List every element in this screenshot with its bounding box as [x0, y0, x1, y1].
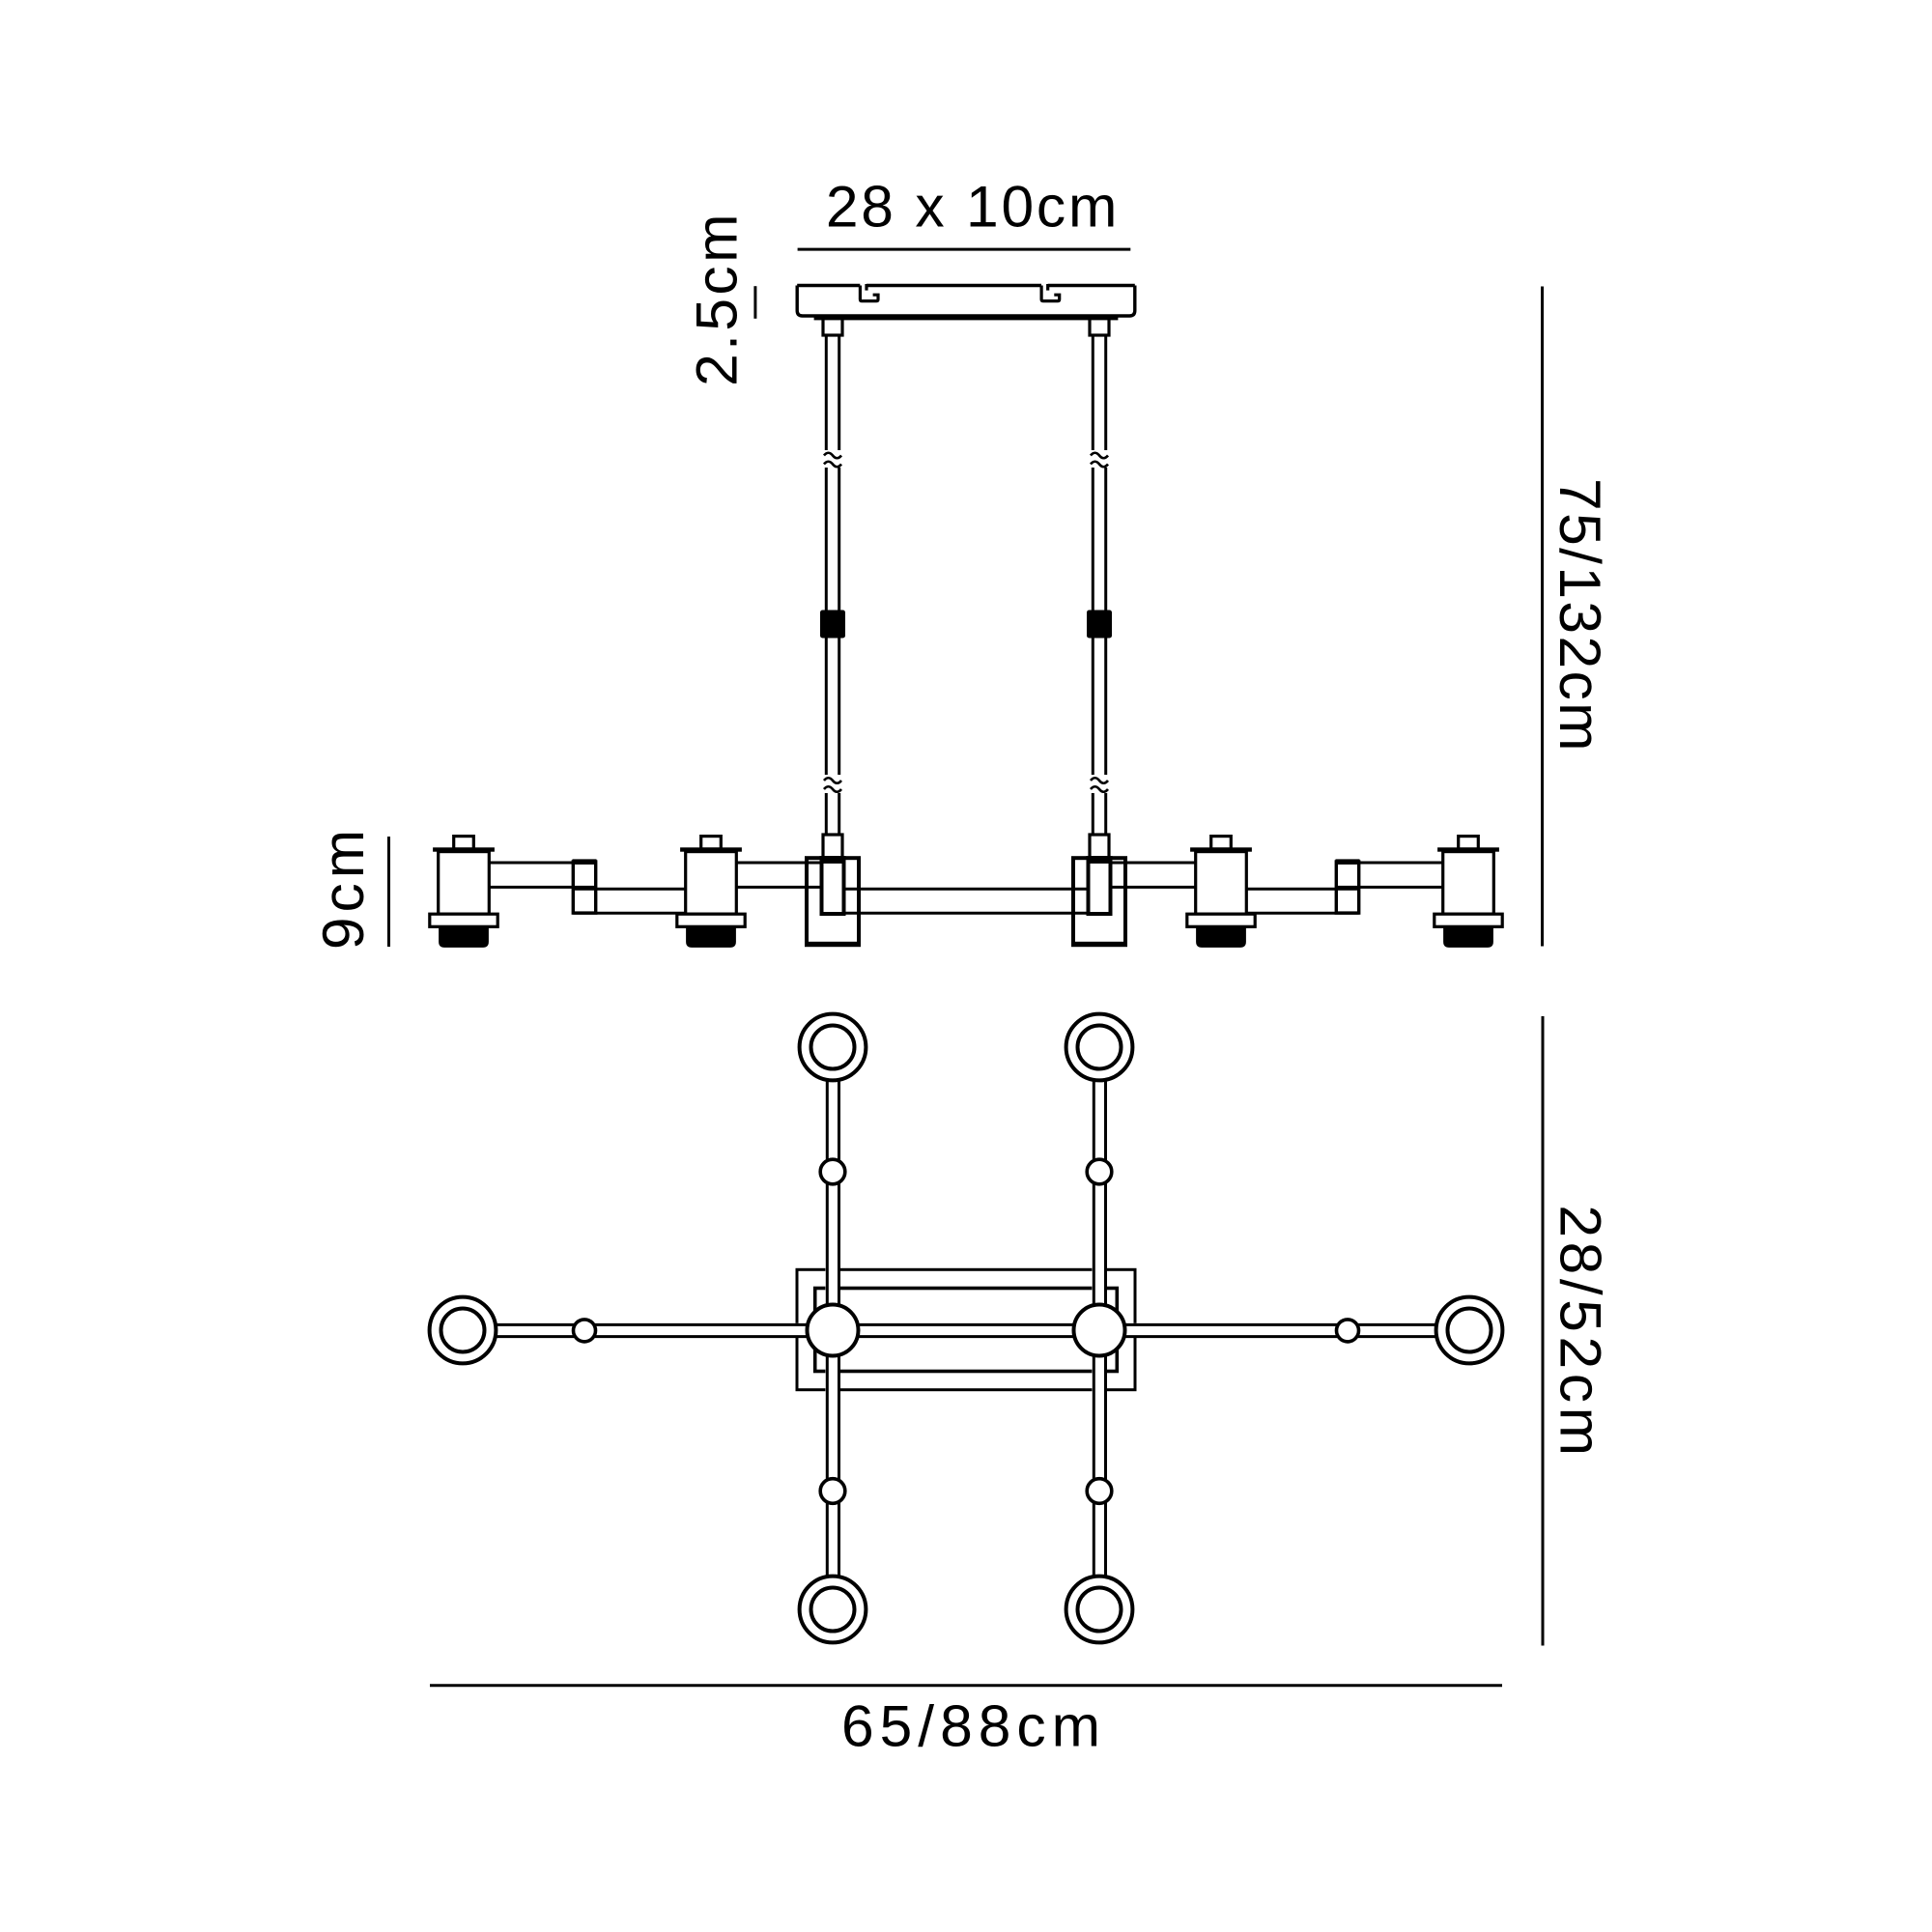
svg-text:28/52cm: 28/52cm	[1548, 1205, 1614, 1460]
svg-text:28 x 10cm: 28 x 10cm	[826, 173, 1120, 239]
svg-text:2.5cm: 2.5cm	[684, 211, 750, 386]
svg-text:9cm: 9cm	[310, 825, 376, 950]
svg-text:75/132cm: 75/132cm	[1548, 478, 1613, 753]
svg-text:65/88cm: 65/88cm	[841, 1692, 1106, 1758]
